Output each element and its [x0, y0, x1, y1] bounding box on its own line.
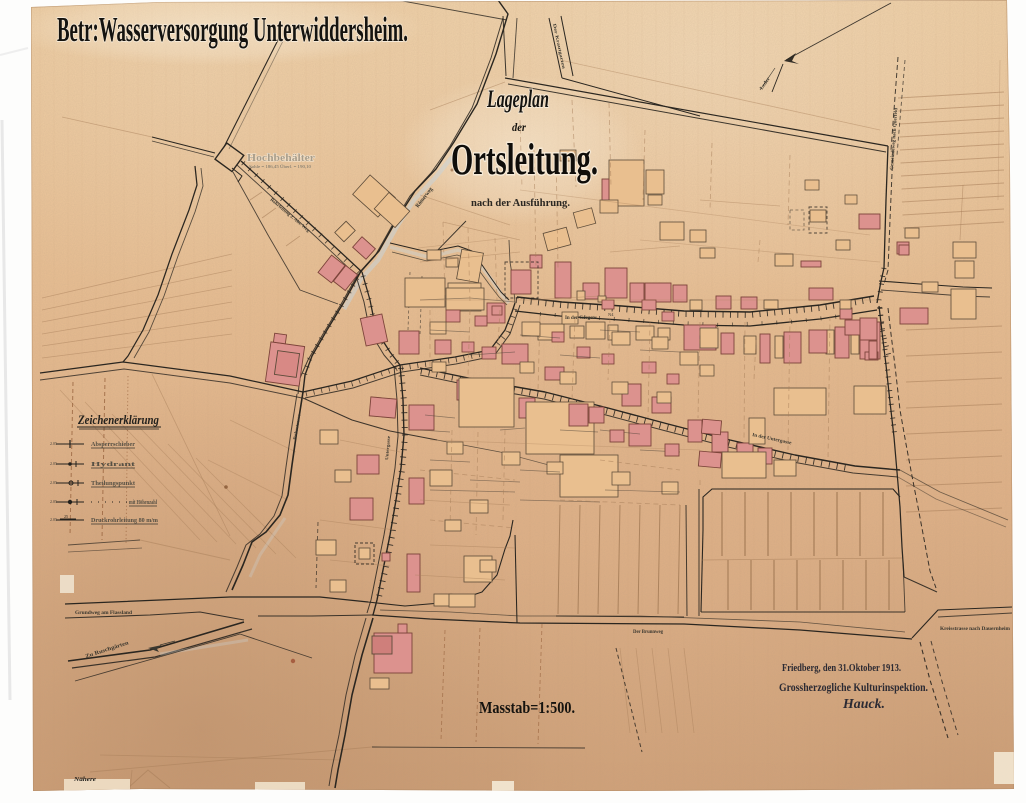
svg-text:Lageplan: Lageplan	[486, 86, 549, 113]
svg-text:mit Höhenzahl: mit Höhenzahl	[129, 500, 157, 506]
svg-text:Zeichenerklärung: Zeichenerklärung	[77, 412, 159, 427]
svg-text:Absperrschieber: Absperrschieber	[91, 441, 135, 448]
svg-text:2.05: 2.05	[50, 480, 57, 485]
svg-text:N4: N4	[608, 312, 614, 317]
svg-text:Kreisstrasse nach Dauernheim: Kreisstrasse nach Dauernheim	[940, 626, 1010, 632]
svg-text:Friedberg, den 31.Oktober 1913: Friedberg, den 31.Oktober 1913.	[782, 662, 901, 674]
svg-text:Theilungspunkt: Theilungspunkt	[91, 480, 136, 487]
svg-text:2.05: 2.05	[50, 441, 57, 446]
svg-text:Der Brunnweg: Der Brunnweg	[633, 629, 663, 635]
svg-text:Betr:Wasserversorgung Unterwid: Betr:Wasserversorgung Unterwiddersheim.	[57, 10, 408, 49]
svg-text:Masstab=1:500.: Masstab=1:500.	[479, 698, 575, 717]
svg-text:Nähere: Nähere	[73, 777, 97, 783]
svg-text:Grundweg am Flassland: Grundweg am Flassland	[75, 610, 132, 616]
svg-text:Hochbehälter: Hochbehälter	[247, 152, 315, 164]
svg-text:Grossherzogliche Kulturinspekt: Grossherzogliche Kulturinspektion.	[779, 682, 928, 694]
svg-text:Hydrant: Hydrant	[91, 461, 137, 468]
svg-text:Druckrohrleitung 80 m/m: Druckrohrleitung 80 m/m	[91, 517, 159, 524]
svg-text:2.05: 2.05	[50, 461, 57, 466]
svg-text:nach der Ausführung.: nach der Ausführung.	[471, 197, 570, 209]
svg-text:Ortsleitung.: Ortsleitung.	[451, 135, 598, 184]
svg-text:der: der	[512, 120, 526, 134]
svg-text:2.05: 2.05	[50, 499, 57, 504]
svg-text:Hauck.: Hauck.	[842, 697, 885, 712]
svg-text:25: 25	[64, 514, 68, 519]
svg-text:In der Gergens: In der Gergens	[565, 316, 597, 321]
svg-text:2.05: 2.05	[50, 517, 57, 522]
